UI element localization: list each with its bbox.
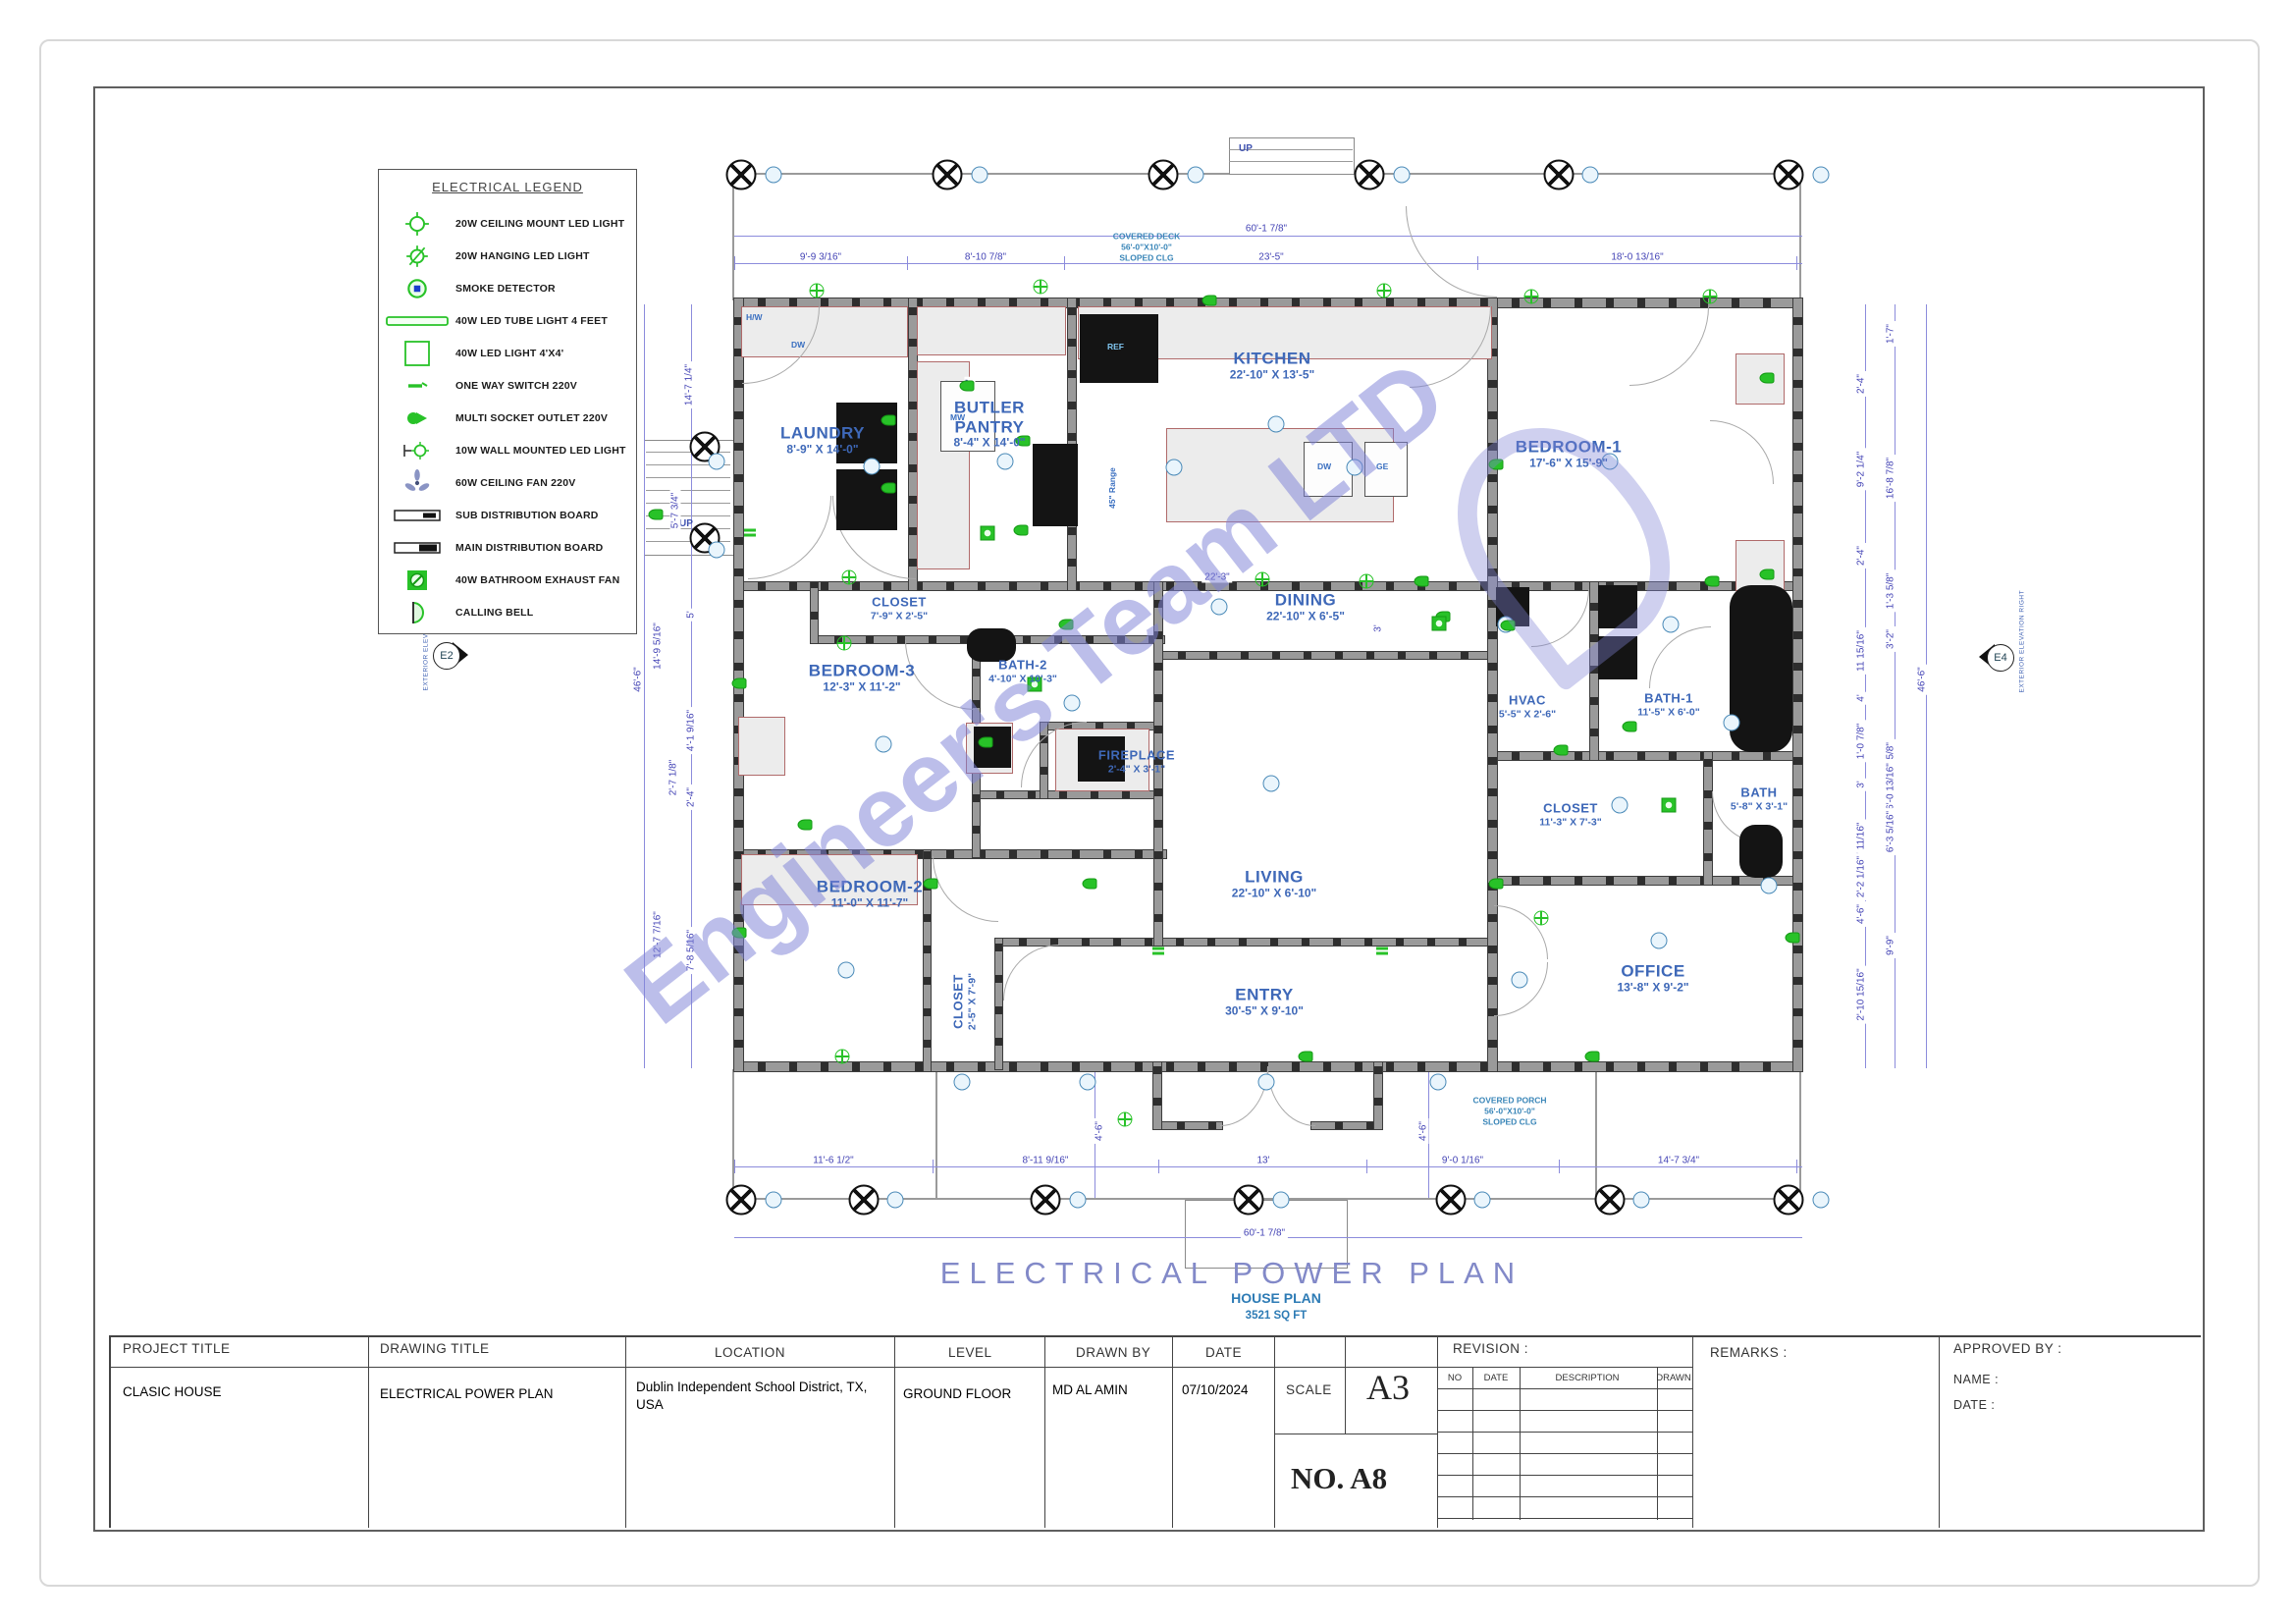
wall_led-icon <box>379 439 455 462</box>
dimension-label: 9'-9 3/16" <box>797 252 844 263</box>
fixture-label: H/W <box>746 312 763 322</box>
up-label: UP <box>679 518 693 529</box>
dimension-tick <box>1158 1160 1159 1173</box>
tb-header-revision: REVISION : <box>1453 1341 1528 1356</box>
room-size: 22'-10" X 6'-5" <box>1266 610 1345 623</box>
tb-value-location: Dublin Independent School District, TX, … <box>636 1379 877 1414</box>
legend-item: MULTI SOCKET OUTLET 220V <box>379 402 636 434</box>
mainb-icon <box>379 540 455 556</box>
dimension-label: 7'-8 5/16" <box>686 927 697 974</box>
dimension-label: 11 15/16" <box>1856 627 1867 675</box>
room-size: 30'-5" X 9'-10" <box>1225 1004 1304 1018</box>
fixture <box>1739 825 1783 878</box>
socket-symbol <box>1489 879 1504 890</box>
device-tag <box>887 1192 904 1209</box>
room-label: CLOSET7'-9" X 2'-5" <box>871 596 928 622</box>
dimension-tick <box>933 1160 934 1173</box>
plan-caption-subtitle: HOUSE PLAN <box>1231 1290 1321 1306</box>
socket-symbol <box>881 415 896 426</box>
fixture <box>1033 444 1078 526</box>
room-name: HVAC <box>1499 694 1556 709</box>
room-name: CLOSET <box>952 973 967 1030</box>
dimension-label: 4' <box>1856 691 1867 704</box>
tb-header-level: LEVEL <box>948 1345 992 1360</box>
led-symbol <box>1524 290 1539 304</box>
wall-segment <box>1153 1062 1161 1129</box>
wall-segment <box>1374 1062 1382 1129</box>
room-label: CLOSET11'-3" X 7'-3" <box>1539 802 1601 829</box>
dimension-label: 1'-7" <box>1886 321 1896 347</box>
room-size: 12'-3" X 11'-2" <box>809 680 915 694</box>
device-tag <box>1582 167 1599 184</box>
titleblock-line <box>1437 1496 1692 1497</box>
device-tag <box>1813 1192 1830 1209</box>
socket-symbol <box>732 928 747 939</box>
room-label: BATH-111'-5" X 6'-0" <box>1637 692 1699 719</box>
titleblock-line <box>1044 1335 1045 1528</box>
titleblock-line <box>1437 1518 1692 1519</box>
door-arc <box>1406 206 1497 298</box>
dimension-label: 13' <box>1254 1156 1272 1166</box>
dimension-label: 4'-1 9/16" <box>686 707 697 754</box>
tb-header-drawn-by: DRAWN BY <box>1076 1345 1150 1360</box>
dimension-label: 2'-7 1/8" <box>668 757 679 799</box>
dimension-label: 8'-10 7/8" <box>962 252 1009 263</box>
device-tag <box>1070 1192 1087 1209</box>
device-tag <box>972 167 988 184</box>
room-size: 22'-10" X 6'-10" <box>1232 887 1316 900</box>
tb-header-drawing: DRAWING TITLE <box>380 1341 490 1356</box>
stair-tread <box>1229 161 1353 162</box>
counter <box>1166 428 1394 522</box>
dimension-label: 46'-6" <box>1917 664 1928 694</box>
led-symbol <box>810 284 825 298</box>
dimension-line <box>734 263 1802 264</box>
room-name: KITCHEN <box>1230 349 1314 368</box>
fixture-label: DW <box>1317 461 1331 471</box>
fixture <box>974 727 1011 768</box>
titleblock-line <box>1437 1388 1692 1389</box>
legend-item: 10W WALL MOUNTED LED LIGHT <box>379 434 636 466</box>
socket-symbol <box>1489 460 1504 470</box>
dimension-line <box>734 236 1802 237</box>
legend-item-label: MULTI SOCKET OUTLET 220V <box>455 412 608 424</box>
room-label: BATH-24'-10" X 10'-3" <box>988 659 1057 685</box>
led-symbol <box>1360 574 1374 589</box>
legend-item-label: SMOKE DETECTOR <box>455 283 556 295</box>
device-tag <box>1761 878 1778 894</box>
counter <box>738 717 785 776</box>
room-label: DINING22'-10" X 6'-5" <box>1266 590 1345 622</box>
device-tag <box>766 1192 782 1209</box>
led-symbol <box>1703 290 1718 304</box>
device-tag <box>709 542 725 559</box>
room-label: FIREPLACE2'-4" X 3'-1" <box>1098 749 1175 776</box>
fixture-label: GE <box>1376 461 1388 471</box>
tb-header-location: LOCATION <box>715 1345 785 1360</box>
led-symbol <box>837 636 852 651</box>
dimension-label: 2'-4" <box>686 784 697 810</box>
plan-caption-area: 3521 SQ FT <box>1246 1310 1308 1322</box>
tb-value-level: GROUND FLOOR <box>903 1386 1011 1401</box>
dimension-label: 4'-6" <box>1095 1118 1105 1144</box>
deck-outline <box>1799 173 1801 300</box>
column-symbol <box>849 1185 880 1216</box>
deck-outline <box>1799 1069 1801 1200</box>
legend-item-label: CALLING BELL <box>455 607 533 619</box>
wall-segment <box>995 939 1496 946</box>
titleblock-line <box>1437 1475 1692 1476</box>
tube-icon <box>379 314 455 328</box>
dimension-label: 12'-7 7/16" <box>653 908 664 961</box>
led-symbol <box>842 570 857 585</box>
door-arc <box>933 856 998 922</box>
door-arc <box>1531 589 1589 647</box>
led-symbol <box>1255 572 1270 587</box>
legend-item: MAIN DISTRIBUTION BOARD <box>379 531 636 564</box>
fixture-label: 45" Range <box>1107 467 1117 509</box>
room-label: BEDROOM-312'-3" X 11'-2" <box>809 661 915 693</box>
titleblock-line <box>1274 1434 1437 1434</box>
room-size: 13'-8" X 9'-2" <box>1617 981 1688 995</box>
socket-symbol <box>924 879 938 890</box>
revision-col-header: DATE <box>1484 1373 1509 1383</box>
room-label: OFFICE13'-8" X 9'-2" <box>1617 961 1688 994</box>
titleblock-line <box>1437 1453 1692 1454</box>
dimension-tick <box>907 256 908 270</box>
floor-plan-canvas: UPUP60'-1 7/8"9'-9 3/16"8'-10 7/8"23'-5"… <box>0 0 2296 1623</box>
tb-value-project: CLASIC HOUSE <box>123 1384 222 1399</box>
stair-tread <box>646 490 730 491</box>
door-arc <box>1710 420 1774 484</box>
socket-symbol <box>1705 576 1720 587</box>
counter <box>917 306 1066 355</box>
device-tag <box>1633 1192 1650 1209</box>
column-symbol <box>1595 1185 1626 1216</box>
column-symbol <box>1148 160 1179 190</box>
fixture <box>1730 585 1792 752</box>
socket-symbol <box>798 820 813 831</box>
socket-symbol <box>1585 1052 1600 1062</box>
wall-segment <box>1704 752 1712 885</box>
tb-scale-value: A3 <box>1366 1367 1410 1408</box>
device-tag <box>1651 933 1668 949</box>
socket-symbol <box>1083 879 1097 890</box>
deck-outline <box>1595 1069 1597 1198</box>
dimension-label: 4'-6" <box>1856 901 1867 927</box>
ceil_led-icon <box>379 211 455 237</box>
titleblock-line <box>109 1367 1692 1368</box>
column-symbol <box>1355 160 1385 190</box>
smoke-icon <box>379 276 455 301</box>
column-symbol <box>1031 1185 1061 1216</box>
electrical-legend: ELECTRICAL LEGEND 20W CEILING MOUNT LED … <box>378 169 637 634</box>
room-name: BEDROOM-2 <box>817 877 923 896</box>
door-arc <box>1494 962 1548 1016</box>
covered-porch-note: COVERED PORCH 56'-0"X10'-0" SLOPED CLG <box>1472 1095 1546 1127</box>
hang_led-icon <box>379 243 455 269</box>
socket-symbol <box>1760 373 1775 384</box>
switch-symbol <box>744 529 756 532</box>
switch-symbol <box>1376 947 1388 950</box>
room-name: FIREPLACE <box>1098 749 1175 764</box>
device-tag <box>1347 460 1363 476</box>
wall-segment <box>1153 1122 1222 1129</box>
dimension-label: 14'-9 5/16" <box>653 620 664 673</box>
legend-item-label: 20W HANGING LED LIGHT <box>455 250 590 262</box>
socket-symbol <box>960 381 975 392</box>
room-size: 2'-5" X 7'-9" <box>966 973 978 1030</box>
socket-symbol <box>1760 569 1775 580</box>
dimension-label: 5' <box>686 608 697 621</box>
room-size: 7'-9" X 2'-5" <box>871 610 928 622</box>
room-name: OFFICE <box>1617 961 1688 981</box>
column-symbol <box>726 1185 757 1216</box>
dimension-tick <box>1796 1160 1797 1173</box>
tb-header-approved: APPROVED BY : <box>1953 1341 2062 1356</box>
room-label: BEDROOM-211'-0" X 11'-7" <box>817 877 923 909</box>
dimension-label: 18'-0 13/16" <box>1608 252 1666 263</box>
socket-icon <box>379 408 455 428</box>
room-name: BATH-2 <box>988 659 1057 674</box>
legend-item: 40W LED TUBE LIGHT 4 FEET <box>379 304 636 337</box>
dimension-label: 11'-6 1/2" <box>810 1156 856 1166</box>
elevation-marker-e4: E4 <box>1987 644 2014 672</box>
dimension-tick <box>734 1160 735 1173</box>
device-tag <box>1474 1192 1491 1209</box>
room-label: HVAC5'-5" X 2'-6" <box>1499 694 1556 721</box>
legend-item: ONE WAY SWITCH 220V <box>379 369 636 402</box>
elevation-caption: EXTERIOR ELEVATION RIGHT <box>2019 615 2026 693</box>
subb-icon <box>379 508 455 523</box>
titleblock-line <box>1172 1335 1173 1528</box>
room-name: CLOSET <box>871 596 928 611</box>
fixture <box>836 469 897 530</box>
device-tag <box>1430 1074 1447 1091</box>
plan-caption-title: ELECTRICAL POWER PLAN <box>940 1256 1523 1291</box>
socket-symbol <box>979 737 993 748</box>
wall-segment <box>1793 298 1802 1071</box>
legend-item: 40W BATHROOM EXHAUST FAN <box>379 564 636 596</box>
dimension-label: 6'-0 13/16" <box>1886 760 1896 813</box>
legend-item-label: MAIN DISTRIBUTION BOARD <box>455 542 603 554</box>
dimension-label: 2'-10 15/16" <box>1856 965 1867 1023</box>
tb-value-drawing: ELECTRICAL POWER PLAN <box>380 1386 554 1401</box>
room-label: BATH5'-8" X 3'-1" <box>1731 786 1788 813</box>
dimension-label: 1'-3 5/8" <box>1886 570 1896 613</box>
legend-title: ELECTRICAL LEGEND <box>379 180 636 194</box>
revision-col-header: NO <box>1448 1373 1462 1383</box>
titleblock-line <box>1274 1335 1275 1528</box>
exhaust-symbol <box>1432 617 1447 631</box>
room-name: ENTRY <box>1225 985 1304 1004</box>
wall-segment <box>1590 582 1598 760</box>
legend-item-label: 40W LED LIGHT 4'X4' <box>455 348 563 359</box>
titleblock-line <box>109 1335 2201 1337</box>
fixture-label: MW <box>950 412 965 422</box>
dimension-label: 22'-3" <box>1201 572 1232 583</box>
door-arc <box>1021 722 1087 787</box>
room-name: BATH <box>1731 786 1788 801</box>
device-tag <box>1258 1074 1275 1091</box>
switch-symbol <box>1152 947 1164 950</box>
counter <box>1735 540 1785 591</box>
room-size: 17'-6" X 15'-9" <box>1516 457 1622 470</box>
device-tag <box>1273 1192 1290 1209</box>
tb-header-project: PROJECT TITLE <box>123 1341 231 1356</box>
legend-item: SMOKE DETECTOR <box>379 272 636 304</box>
room-size: 8'-4" X 14'-0" <box>953 437 1025 451</box>
room-label: BEDROOM-117'-6" X 15'-9" <box>1516 437 1622 469</box>
device-tag <box>864 459 881 475</box>
dimension-tick <box>1366 1160 1367 1173</box>
room-name: DINING <box>1266 590 1345 610</box>
room-name: BEDROOM-1 <box>1516 437 1622 457</box>
elevation-marker-e2: E2 <box>433 642 460 670</box>
dimension-tick <box>1559 1160 1560 1173</box>
room-size: 5'-5" X 2'-6" <box>1499 708 1556 720</box>
room-size: 5'-8" X 3'-1" <box>1731 800 1788 812</box>
legend-item-label: 20W CEILING MOUNT LED LIGHT <box>455 218 624 230</box>
room-label: ENTRY30'-5" X 9'-10" <box>1225 985 1304 1017</box>
legend-item: 20W HANGING LED LIGHT <box>379 240 636 272</box>
revision-col-header: DESCRIPTION <box>1556 1373 1620 1383</box>
legend-item-label: 40W LED TUBE LIGHT 4 FEET <box>455 315 608 327</box>
stair-tread <box>646 477 730 478</box>
tb-sheet-number: NO. A8 <box>1291 1461 1387 1496</box>
deck-outline <box>732 173 734 300</box>
led-symbol <box>1534 911 1549 926</box>
door-arc <box>1629 306 1709 386</box>
bell-icon <box>379 600 455 625</box>
column-symbol <box>933 160 963 190</box>
deck-outline <box>732 1069 734 1200</box>
device-tag <box>1512 972 1528 989</box>
room-label: KITCHEN22'-10" X 13'-5" <box>1230 349 1314 381</box>
titleblock-line <box>894 1335 895 1528</box>
socket-symbol <box>881 483 896 494</box>
device-tag <box>954 1074 971 1091</box>
column-symbol <box>1436 1185 1467 1216</box>
room-size: 11'-3" X 7'-3" <box>1539 816 1601 828</box>
dimension-label: 60'-1 7/8" <box>1243 224 1290 235</box>
device-tag <box>997 454 1014 470</box>
dimension-label: 8'-11 9/16" <box>1020 1156 1072 1166</box>
room-label: LIVING22'-10" X 6'-10" <box>1232 867 1316 899</box>
dimension-label: 60'-1 7/8" <box>1241 1228 1288 1239</box>
titleblock-line <box>1692 1335 1693 1528</box>
device-tag <box>1813 167 1830 184</box>
dimension-label: 14'-7 3/4" <box>1655 1156 1702 1166</box>
wall-segment <box>973 791 1161 798</box>
room-label: CLOSET2'-5" X 7'-9" <box>952 973 979 1030</box>
fan-icon <box>379 469 455 497</box>
room-label: BUTLER PANTRY8'-4" X 14'-0" <box>953 399 1025 451</box>
room-size: 11'-5" X 6'-0" <box>1637 706 1699 718</box>
socket-symbol <box>732 678 747 689</box>
socket-symbol <box>1202 296 1217 306</box>
door-arc <box>748 496 831 579</box>
door-arc <box>1649 626 1711 688</box>
dimension-label: 4'-6" <box>1418 1118 1429 1144</box>
dimension-line <box>644 304 645 1068</box>
device-tag <box>1663 617 1680 633</box>
tb-value-drawn-by: MD AL AMIN <box>1052 1382 1128 1397</box>
stair-tread <box>646 503 730 504</box>
dimension-line <box>1865 304 1866 1068</box>
legend-rows: 20W CEILING MOUNT LED LIGHT20W HANGING L… <box>379 207 636 628</box>
device-tag <box>876 736 892 753</box>
exh-icon <box>379 568 455 592</box>
fixture-label: REF <box>1107 342 1124 352</box>
titleblock-line <box>1437 1410 1692 1411</box>
door-arc <box>1003 945 1059 1001</box>
dimension-tick <box>1796 256 1797 270</box>
titleblock-line <box>1939 1335 1940 1528</box>
socket-symbol <box>1059 620 1074 630</box>
dimension-label: 2'-4" <box>1856 371 1867 397</box>
legend-item-label: 60W CEILING FAN 220V <box>455 477 575 489</box>
dimension-label: 46'-6" <box>633 664 644 694</box>
sw1-icon <box>379 380 455 392</box>
titleblock-line <box>1437 1432 1692 1433</box>
room-name: LIVING <box>1232 867 1316 887</box>
legend-item: 40W LED LIGHT 4'X4' <box>379 337 636 369</box>
legend-item: SUB DISTRIBUTION BOARD <box>379 499 636 531</box>
exhaust-symbol <box>981 526 995 541</box>
wall-segment <box>1154 652 1496 659</box>
dimension-line <box>734 1166 1802 1167</box>
room-size: 4'-10" X 10'-3" <box>988 673 1057 684</box>
deck-outline <box>935 1069 937 1198</box>
column-symbol <box>1544 160 1575 190</box>
titleblock-line <box>625 1335 626 1528</box>
dimension-label: 1'-0 7/8" <box>1856 721 1867 763</box>
titleblock-line <box>109 1335 111 1528</box>
elevation-id: E4 <box>1987 644 2014 672</box>
tb-scale-label: SCALE <box>1286 1382 1332 1397</box>
wall-segment <box>811 582 818 643</box>
elevation-id: E2 <box>433 642 460 670</box>
socket-symbol <box>1299 1052 1313 1062</box>
tb-approved-name: NAME : <box>1953 1373 1999 1386</box>
dimension-tick <box>734 256 735 270</box>
legend-item: 20W CEILING MOUNT LED LIGHT <box>379 207 636 240</box>
room-size: 2'-4" X 3'-1" <box>1098 763 1175 775</box>
room-size: 8'-9" X 14'-0" <box>780 443 865 457</box>
tb-value-date: 07/10/2024 <box>1182 1382 1249 1397</box>
room-name: BATH-1 <box>1637 692 1699 707</box>
device-tag <box>1263 776 1280 792</box>
legend-item-label: 10W WALL MOUNTED LED LIGHT <box>455 445 626 457</box>
column-symbol <box>1774 1185 1804 1216</box>
tb-header-remarks: REMARKS : <box>1710 1345 1788 1360</box>
legend-item-label: 40W BATHROOM EXHAUST FAN <box>455 574 619 586</box>
wall-segment <box>1311 1122 1380 1129</box>
wall-segment <box>1488 877 1800 885</box>
fixture <box>1598 585 1637 628</box>
dimension-label: 5'-7 3/4" <box>670 490 681 532</box>
up-label: UP <box>1239 143 1253 154</box>
dimension-label: 16'-8 7/8" <box>1886 455 1896 502</box>
device-tag <box>1064 695 1081 712</box>
dimension-label: 3' <box>1856 778 1867 790</box>
socket-symbol <box>1554 745 1569 756</box>
legend-item: 60W CEILING FAN 220V <box>379 466 636 499</box>
device-tag <box>1612 797 1629 814</box>
tb-approved-date: DATE : <box>1953 1398 1995 1412</box>
room-name: CLOSET <box>1539 802 1601 817</box>
